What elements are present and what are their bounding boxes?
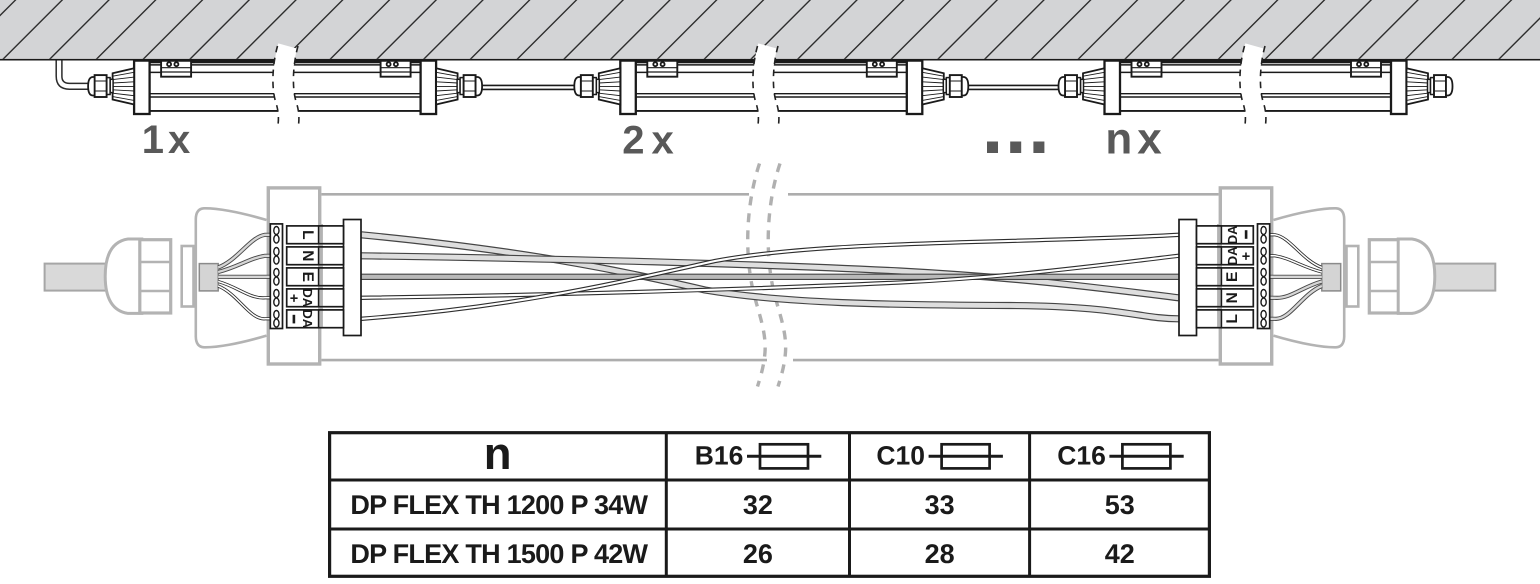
svg-text:+: + [290, 291, 298, 307]
svg-text:DP FLEX TH 1200 P 34W: DP FLEX TH 1200 P 34W [350, 490, 648, 520]
svg-text:L: L [299, 230, 316, 239]
svg-text:E: E [299, 272, 316, 282]
svg-text:nx: nx [1105, 115, 1166, 164]
svg-text:N: N [1224, 292, 1241, 303]
svg-text:32: 32 [743, 490, 773, 520]
svg-text:33: 33 [925, 490, 955, 520]
svg-text:26: 26 [743, 539, 773, 569]
svg-text:C10: C10 [876, 441, 925, 471]
svg-text:E: E [1224, 272, 1241, 282]
svg-text:53: 53 [1105, 490, 1135, 520]
svg-text:+: + [1242, 249, 1250, 265]
svg-text:28: 28 [925, 539, 955, 569]
svg-text:N: N [299, 250, 316, 261]
svg-text:B16: B16 [695, 441, 744, 471]
svg-text:n: n [484, 428, 512, 479]
svg-text:DA: DA [300, 288, 315, 308]
svg-text:42: 42 [1105, 539, 1135, 569]
svg-text:DA: DA [300, 309, 315, 329]
svg-text:DA: DA [1225, 246, 1240, 266]
svg-text:1x: 1x [142, 118, 195, 162]
svg-text:C16: C16 [1057, 441, 1106, 471]
svg-text:L: L [1224, 314, 1241, 323]
svg-text:2x: 2x [622, 119, 681, 163]
svg-text:DA: DA [1225, 225, 1240, 245]
svg-text:DP FLEX TH 1500 P 42W: DP FLEX TH 1500 P 42W [350, 539, 648, 569]
